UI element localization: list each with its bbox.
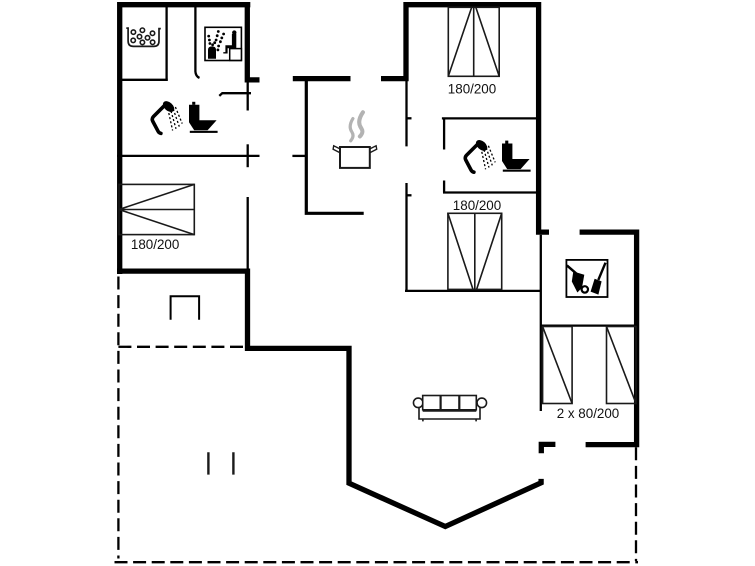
svg-text:180/200: 180/200 — [448, 81, 496, 96]
svg-text:2 x 80/200: 2 x 80/200 — [557, 406, 620, 421]
svg-text:180/200: 180/200 — [131, 237, 179, 252]
svg-text:180/200: 180/200 — [453, 198, 501, 213]
